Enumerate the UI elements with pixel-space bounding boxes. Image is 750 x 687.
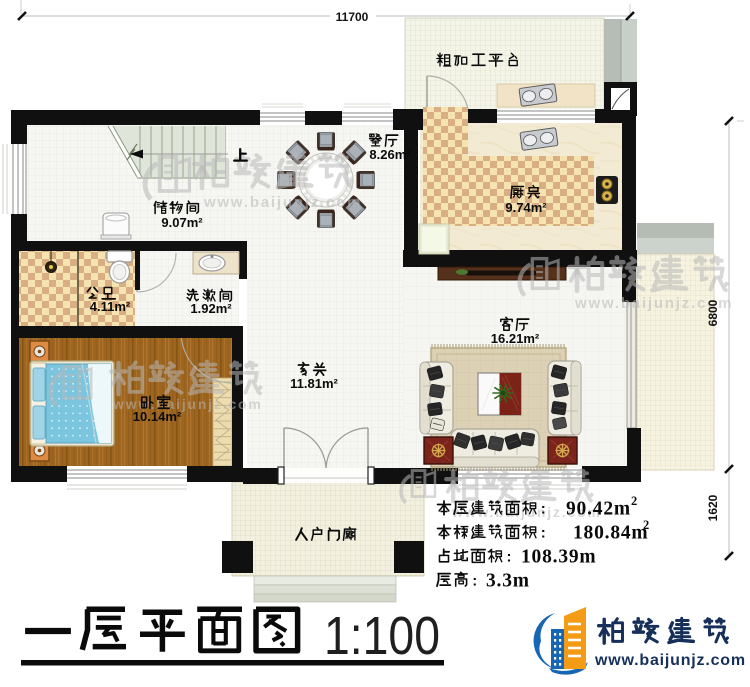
svg-text::: : xyxy=(506,549,511,566)
svg-text:4.11m²: 4.11m² xyxy=(90,299,131,314)
svg-text:180.84m: 180.84m xyxy=(573,523,648,544)
svg-text:1620: 1620 xyxy=(706,494,720,521)
svg-text:10.14m²: 10.14m² xyxy=(133,409,182,424)
svg-text:1:100: 1:100 xyxy=(324,606,440,666)
svg-text:16.21m²: 16.21m² xyxy=(491,331,540,346)
svg-text:9.07m²: 9.07m² xyxy=(161,215,203,230)
svg-text:3.3m: 3.3m xyxy=(486,571,530,592)
svg-text:www.baijunjz.com: www.baijunjz.com xyxy=(203,194,362,211)
svg-text:2: 2 xyxy=(643,518,649,532)
svg-text::: : xyxy=(541,525,546,542)
svg-text::: : xyxy=(472,573,477,590)
svg-text:9.74m²: 9.74m² xyxy=(505,200,547,215)
svg-text:www.baijunjz.com: www.baijunjz.com xyxy=(594,652,746,669)
svg-text:6800: 6800 xyxy=(706,299,720,326)
svg-text:90.42m: 90.42m xyxy=(566,499,631,520)
svg-text::: : xyxy=(541,501,546,518)
svg-text:11700: 11700 xyxy=(336,10,369,24)
svg-text:1.92m²: 1.92m² xyxy=(190,301,232,316)
svg-text:108.39m: 108.39m xyxy=(521,547,596,568)
svg-text:8.26m²: 8.26m² xyxy=(369,147,411,162)
svg-text:11.81m²: 11.81m² xyxy=(290,376,338,391)
svg-text:2: 2 xyxy=(631,494,637,508)
